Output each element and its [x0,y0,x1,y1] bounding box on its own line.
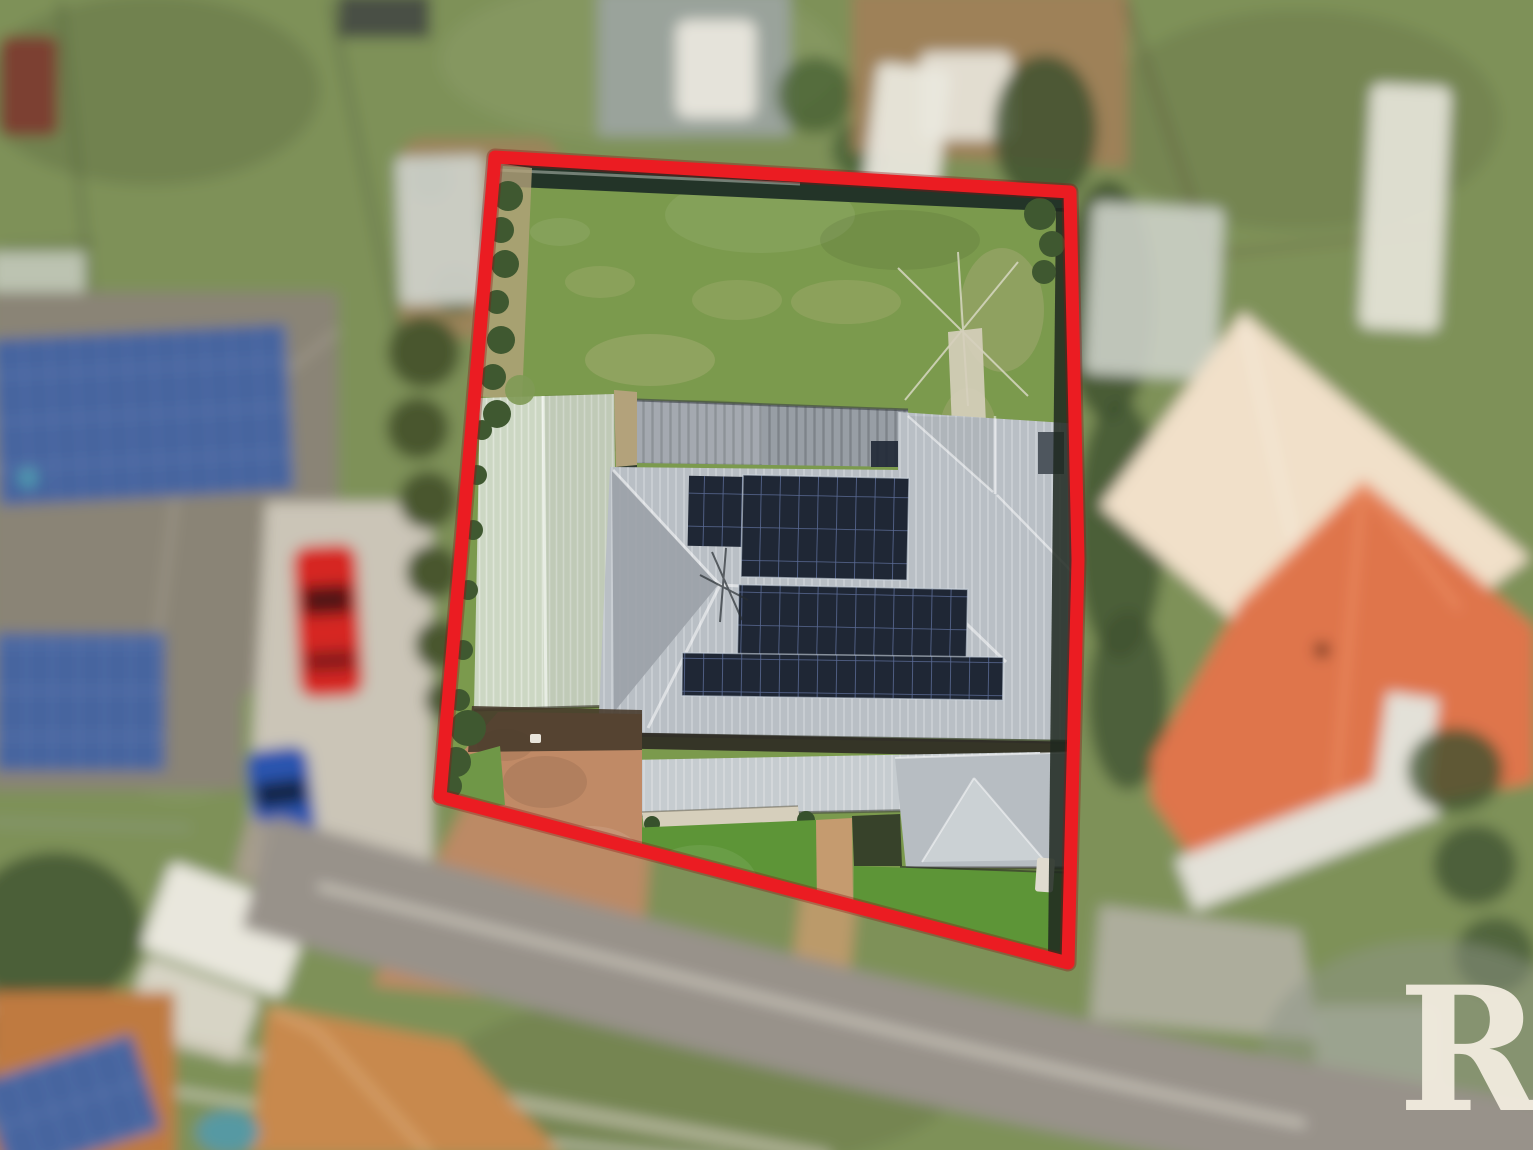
left-neighbor-solar-array-2 [0,633,165,771]
light-bush [505,375,535,405]
tree [777,57,853,133]
white-carport [1084,202,1225,381]
solar-array-lower [682,653,1004,700]
hedge [1407,728,1503,812]
car-rear-window [305,649,356,674]
agency-watermark: R& [1398,948,1533,1150]
red-garden-structure [0,36,58,136]
dark-shed-roof [338,0,430,38]
aerial-property-photo: R& [0,0,1533,1150]
driveway-shade [503,756,587,808]
small-white-object [530,734,541,743]
pool-object [18,468,38,488]
roof-vent [1314,642,1330,658]
side-dirt-gap [614,390,637,467]
red-car [292,543,364,698]
rear-roof-light [637,400,762,464]
caravan [1359,83,1452,332]
hedge [1433,825,1517,905]
photo-canvas: R& [0,0,1533,1150]
solar-array-middle [737,585,967,663]
carport-shadow [468,706,642,752]
car-windshield [301,584,353,617]
white-vehicle [676,20,756,118]
garden-shadow [852,814,902,866]
left-neighbor-solar-array-1 [0,324,294,505]
white-shed [395,155,488,306]
